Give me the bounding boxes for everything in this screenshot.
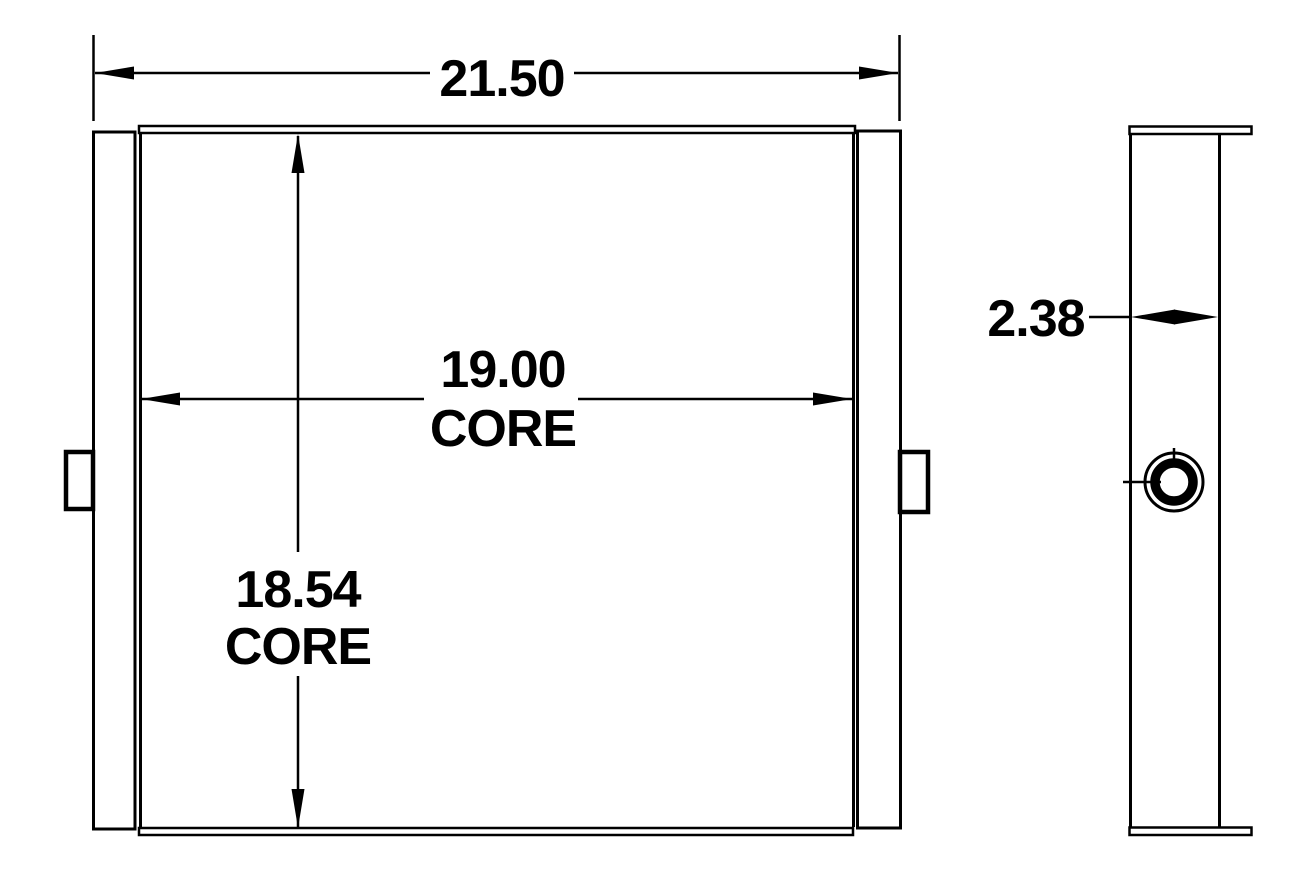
dim-text-core-width-value: 19.00 (440, 341, 565, 399)
right-tank (858, 131, 901, 828)
arrowhead-left (141, 393, 180, 406)
dim-text-depth: 2.38 (987, 290, 1084, 348)
dim-text-core-width-qualifier: CORE (430, 400, 576, 458)
technical-drawing: 21.50 19.00 CORE 18.54 CORE (0, 0, 1304, 886)
arrowhead-left (95, 67, 134, 80)
dim-text-overall-width: 21.50 (439, 50, 564, 108)
dim-text-core-height-value: 18.54 (235, 561, 361, 619)
side-bottom-flange (1130, 828, 1252, 836)
left-mounting-tab (66, 452, 93, 509)
arrowhead-up (292, 134, 305, 173)
arrowhead-left (1131, 310, 1175, 325)
dim-depth: 2.38 (987, 290, 1218, 348)
core-bottom-header-plate (139, 828, 853, 835)
front-view (66, 126, 928, 835)
dim-overall-width: 21.50 (94, 35, 900, 121)
drawing-root: 21.50 19.00 CORE 18.54 CORE (66, 35, 1252, 835)
right-mounting-tab (900, 452, 928, 512)
side-top-flange (1130, 127, 1252, 135)
dim-text-core-height-qualifier: CORE (225, 618, 371, 676)
dim-core-width: 19.00 CORE (141, 341, 852, 458)
arrowhead-down (292, 789, 305, 828)
left-tank (94, 132, 136, 829)
dim-core-height: 18.54 CORE (225, 134, 371, 828)
arrowhead-right (859, 67, 898, 80)
technical-drawing-canvas: 21.50 19.00 CORE 18.54 CORE (0, 0, 1304, 886)
arrowhead-right (813, 393, 852, 406)
core-top-header-plate (139, 126, 855, 133)
side-view (1123, 127, 1252, 836)
arrowhead-right (1174, 310, 1218, 325)
